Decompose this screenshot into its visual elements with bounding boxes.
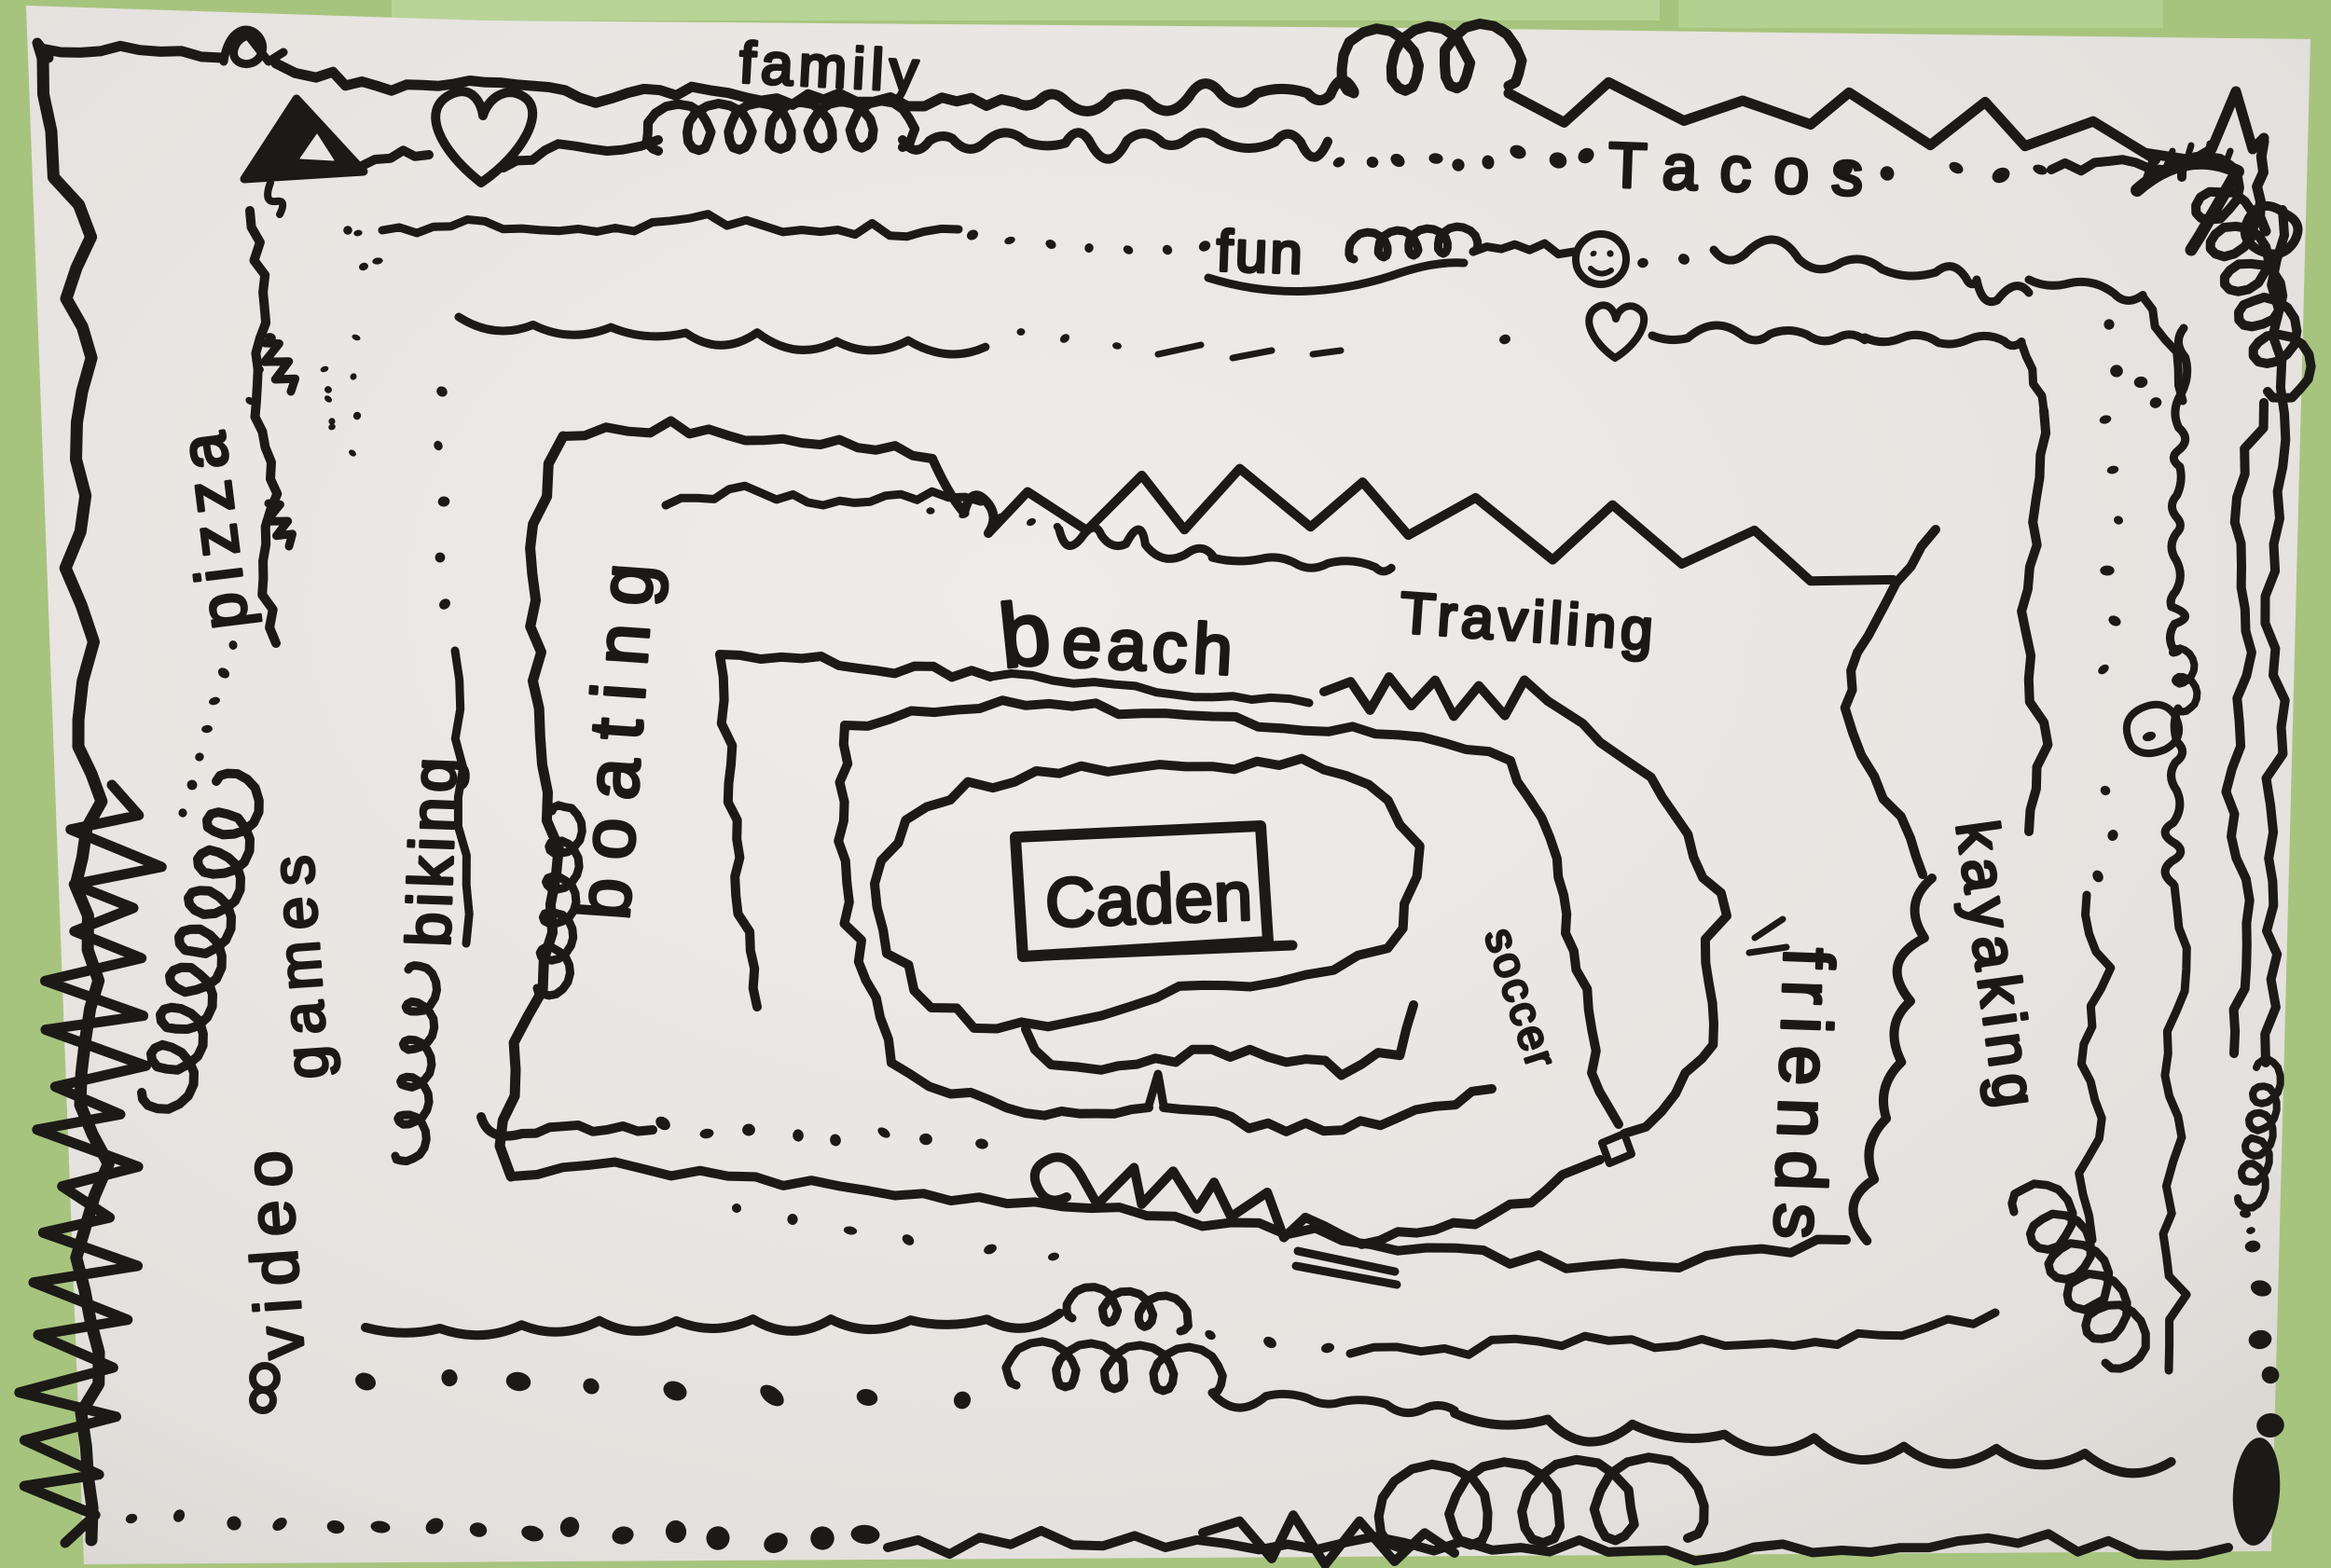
svg-text:video: video: [230, 1135, 318, 1361]
svg-text:family: family: [738, 31, 925, 104]
svg-text:friends: friends: [1759, 946, 1848, 1253]
svg-text:fun: fun: [1216, 219, 1307, 286]
svg-text:each: each: [1060, 602, 1240, 691]
svg-text:Caden: Caden: [1044, 857, 1255, 942]
